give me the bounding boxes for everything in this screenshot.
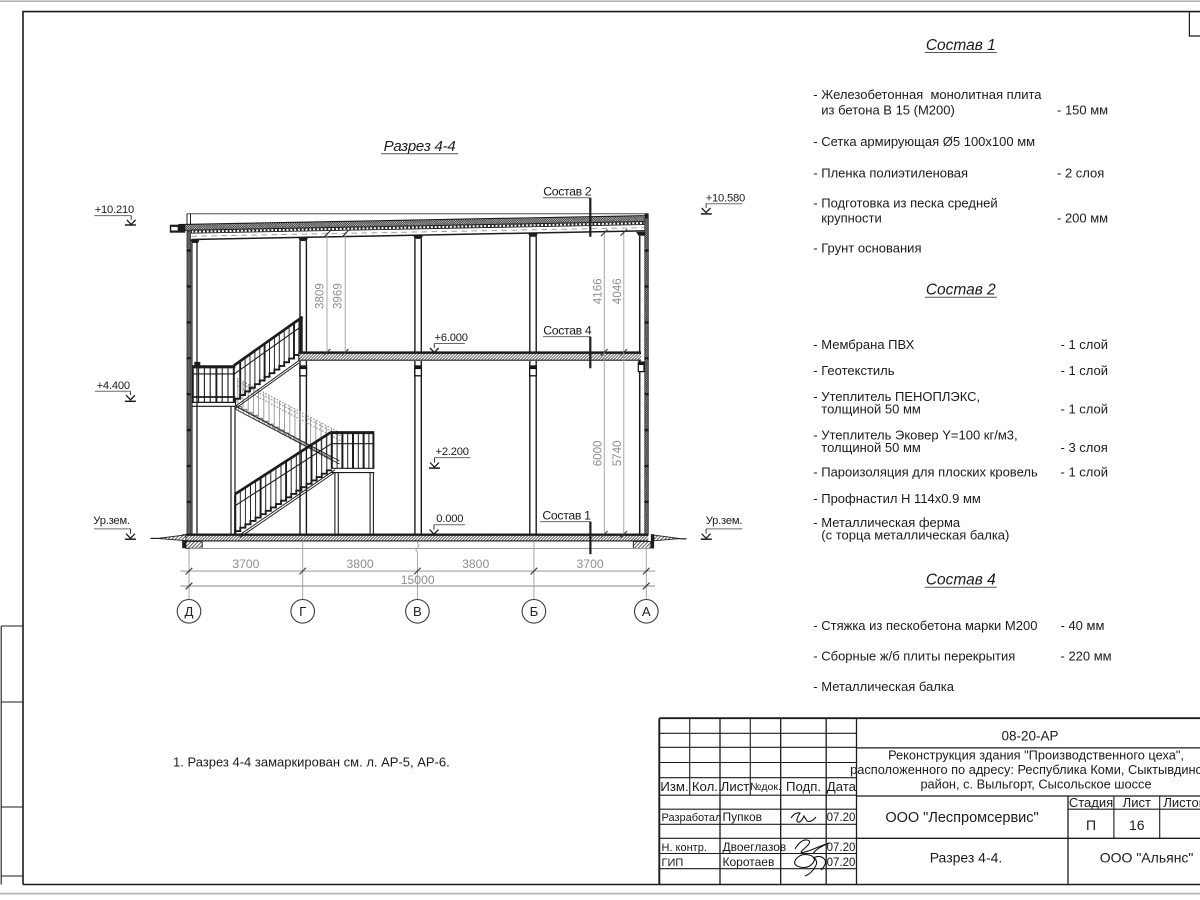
svg-text:Дата: Дата <box>827 779 857 794</box>
svg-text:Лист: Лист <box>1123 795 1151 810</box>
svg-text:- Профнастил Н 114х0.9 мм: - Профнастил Н 114х0.9 мм <box>813 491 981 506</box>
svg-text:Ур.зем.: Ур.зем. <box>93 515 130 527</box>
svg-text:- Стяжка из пескобетона марки: - Стяжка из пескобетона марки М200 <box>813 618 1037 633</box>
svg-text:3700: 3700 <box>577 557 604 571</box>
svg-text:район, с. Выльгорт, Сысольское: район, с. Выльгорт, Сысольское шоссе <box>920 777 1151 792</box>
svg-text:Реконструкция здания "Производ: Реконструкция здания "Производственного … <box>888 748 1184 763</box>
svg-text:- Металлическая балка: - Металлическая балка <box>813 679 954 694</box>
svg-text:- 1 слой: - 1 слой <box>1061 402 1109 417</box>
svg-text:крупности: крупности <box>821 211 881 226</box>
svg-text:- Мембрана ПВХ: - Мембрана ПВХ <box>813 337 914 352</box>
svg-text:- 1 слой: - 1 слой <box>1061 337 1109 352</box>
svg-text:Лист: Лист <box>721 779 750 794</box>
svg-text:Состав 2: Состав 2 <box>543 185 592 199</box>
svg-text:3969: 3969 <box>332 283 345 309</box>
svg-text:(с торца металлическая балка): (с торца металлическая балка) <box>821 528 1009 543</box>
svg-text:- 1 слой: - 1 слой <box>1061 363 1109 378</box>
svg-text:- 2 слоя: - 2 слоя <box>1057 165 1104 180</box>
svg-text:- 200 мм: - 200 мм <box>1057 211 1108 226</box>
svg-text:В: В <box>413 604 422 619</box>
svg-text:№док.: №док. <box>750 781 781 793</box>
svg-text:Г: Г <box>299 604 306 619</box>
svg-text:толщиной 50 мм: толщиной 50 мм <box>821 402 921 417</box>
svg-text:- Сборные ж/б плиты перекрытия: - Сборные ж/б плиты перекрытия <box>813 649 1015 664</box>
svg-text:Состав 2: Состав 2 <box>926 282 996 299</box>
svg-text:4166: 4166 <box>592 278 605 304</box>
svg-text:Состав 4: Состав 4 <box>543 323 592 337</box>
svg-text:Изм.: Изм. <box>660 779 688 794</box>
svg-text:5740: 5740 <box>611 441 624 467</box>
svg-text:16: 16 <box>1129 817 1145 833</box>
svg-text:3800: 3800 <box>462 557 489 571</box>
svg-text:Кол.: Кол. <box>692 779 718 794</box>
svg-text:Коротаев: Коротаев <box>723 855 775 869</box>
svg-text:Состав 1: Состав 1 <box>926 37 996 54</box>
svg-text:Состав 1: Состав 1 <box>542 508 591 522</box>
svg-text:+2.200: +2.200 <box>436 446 469 458</box>
svg-text:Листов: Листов <box>1163 795 1200 810</box>
svg-text:- 220 мм: - 220 мм <box>1061 649 1112 664</box>
svg-text:Стадия: Стадия <box>1069 795 1113 810</box>
svg-text:ГИП: ГИП <box>662 857 684 869</box>
svg-text:3800: 3800 <box>347 557 374 571</box>
svg-text:Н. контр.: Н. контр. <box>662 842 707 854</box>
svg-text:+6.000: +6.000 <box>435 332 468 344</box>
svg-text:из бетона В 15 (М200): из бетона В 15 (М200) <box>821 102 955 117</box>
svg-text:Состав 4: Состав 4 <box>926 572 996 589</box>
svg-text:Д: Д <box>185 604 194 619</box>
svg-text:07.20: 07.20 <box>827 842 856 854</box>
svg-text:6000: 6000 <box>592 441 605 467</box>
svg-text:- 1 слой: - 1 слой <box>1061 465 1109 480</box>
svg-text:- Железобетонная монолитная п: - Железобетонная монолитная плита <box>813 87 1042 102</box>
svg-text:08-20-АР: 08-20-АР <box>1001 729 1058 744</box>
svg-text:0.000: 0.000 <box>436 513 463 525</box>
svg-text:ООО "Альянс": ООО "Альянс" <box>1100 850 1194 866</box>
svg-text:- Пароизоляция для плоских кро: - Пароизоляция для плоских кровель <box>813 465 1038 480</box>
svg-text:07.20: 07.20 <box>827 857 856 869</box>
svg-text:1. Разрез 4-4 замаркирован см.: 1. Разрез 4-4 замаркирован см. л. АР-5, … <box>173 755 450 770</box>
svg-text:+4.400: +4.400 <box>97 380 130 392</box>
svg-text:3809: 3809 <box>313 283 326 309</box>
svg-text:- Геотекстиль: - Геотекстиль <box>813 363 894 378</box>
svg-text:Двоеглазов: Двоеглазов <box>723 840 787 854</box>
svg-text:Подп.: Подп. <box>786 779 821 794</box>
svg-text:Разрез 4-4: Разрез 4-4 <box>384 138 456 155</box>
svg-text:Пупков: Пупков <box>723 810 763 824</box>
svg-text:Разработал: Разработал <box>662 812 722 824</box>
svg-text:15000: 15000 <box>401 573 435 587</box>
svg-text:Разрез 4-4.: Разрез 4-4. <box>930 850 1003 866</box>
svg-text:П: П <box>1086 817 1096 833</box>
svg-text:- Грунт основания: - Грунт основания <box>813 241 921 256</box>
svg-text:3700: 3700 <box>232 557 259 571</box>
svg-text:- 3 слоя: - 3 слоя <box>1061 440 1108 455</box>
svg-text:А: А <box>642 604 651 619</box>
svg-text:ООО "Леспромсервис": ООО "Леспромсервис" <box>885 810 1038 826</box>
svg-text:+10.210: +10.210 <box>95 204 134 216</box>
svg-text:Б: Б <box>530 604 539 619</box>
svg-text:- Пленка полиэтиленовая: - Пленка полиэтиленовая <box>813 165 968 180</box>
svg-text:Ур.зем.: Ур.зем. <box>706 515 743 527</box>
svg-text:расположенного по адресу: Респ: расположенного по адресу: Республика Ком… <box>850 762 1200 777</box>
svg-text:толщиной 50 мм: толщиной 50 мм <box>821 440 921 455</box>
svg-text:- 40 мм: - 40 мм <box>1061 618 1105 633</box>
svg-text:4046: 4046 <box>611 278 624 304</box>
svg-text:- Подготовка из песка средней: - Подготовка из песка средней <box>813 195 997 210</box>
svg-text:- 150 мм: - 150 мм <box>1057 102 1108 117</box>
svg-text:+10.580: +10.580 <box>706 193 745 205</box>
svg-text:- Сетка армирующая Ø5 100х100: - Сетка армирующая Ø5 100х100 мм <box>813 134 1035 149</box>
svg-text:07.20: 07.20 <box>827 812 856 824</box>
